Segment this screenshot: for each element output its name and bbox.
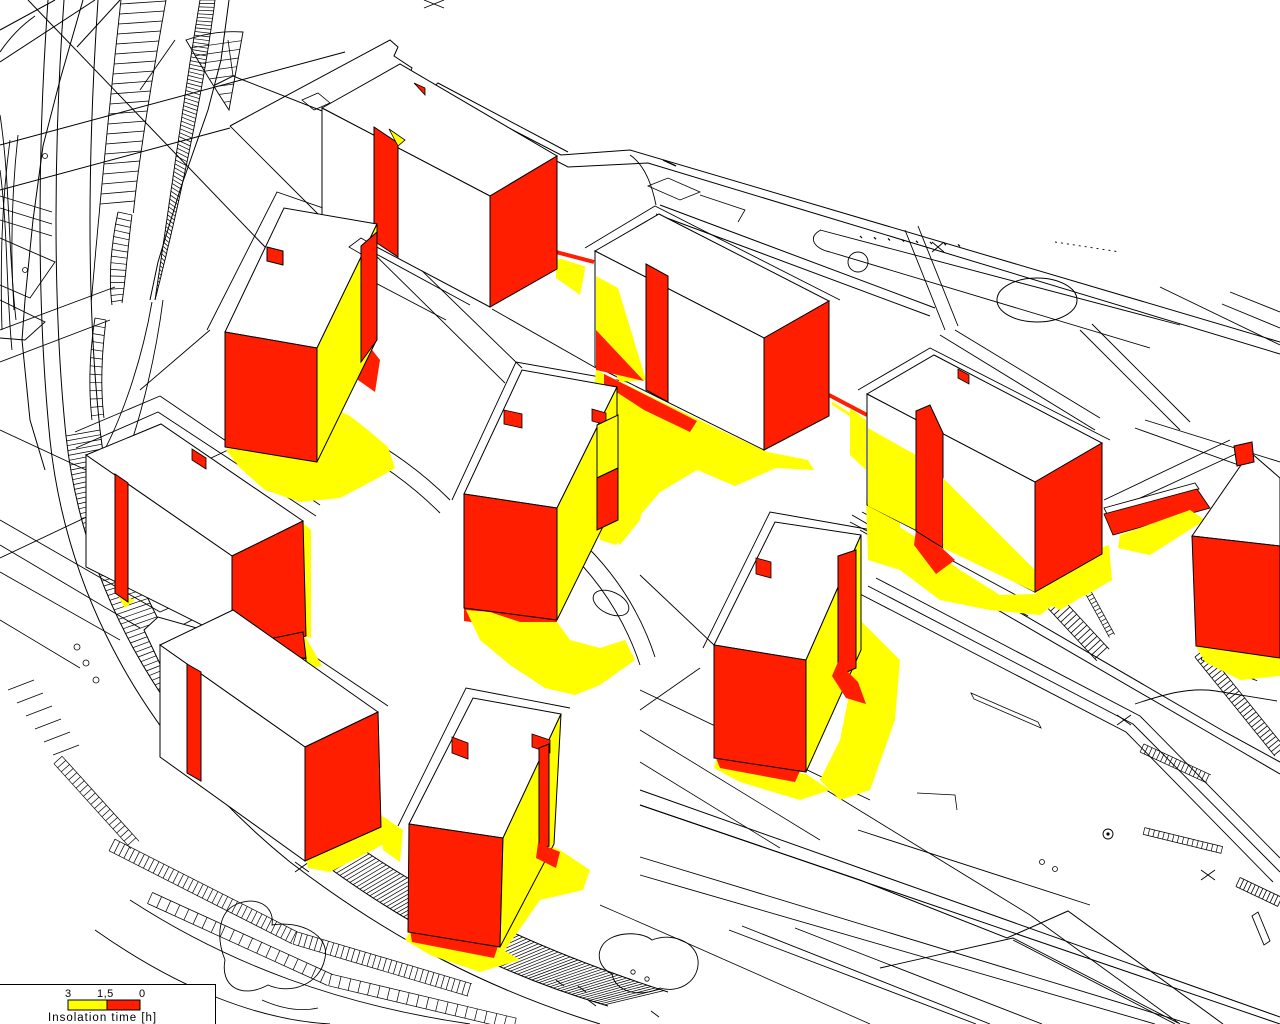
svg-text:Insolation time [h]: Insolation time [h] — [48, 1012, 157, 1024]
svg-text:3: 3 — [65, 988, 71, 1000]
svg-text:1,5: 1,5 — [97, 988, 114, 1000]
svg-text:0: 0 — [139, 988, 145, 1000]
